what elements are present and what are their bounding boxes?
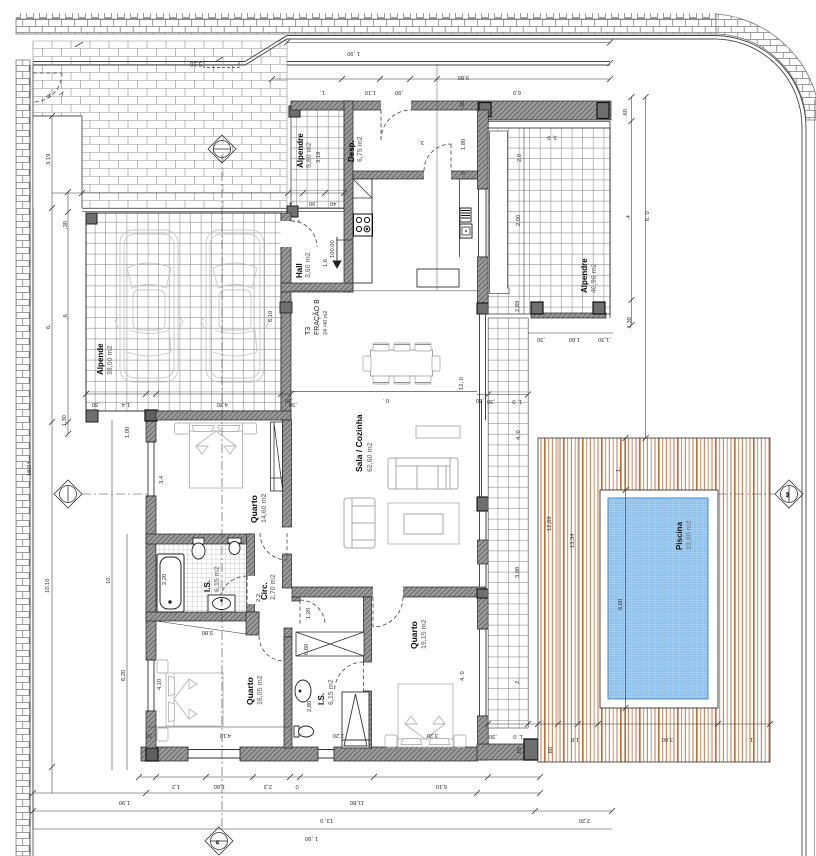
svg-text:1.: 1.	[616, 467, 622, 472]
svg-text:1,6: 1,6	[323, 259, 329, 267]
svg-text:19,84: 19,84	[27, 461, 33, 476]
svg-text:24 /40 m2: 24 /40 m2	[323, 311, 329, 335]
svg-text:6,15 m2: 6,15 m2	[328, 679, 335, 705]
svg-text:12, 0: 12, 0	[459, 377, 465, 390]
svg-text:3,19: 3,19	[316, 152, 322, 163]
svg-text:I.S.: I.S.	[317, 693, 326, 705]
svg-text:1, 0: 1, 0	[513, 733, 523, 739]
svg-text:1,60: 1,60	[214, 783, 225, 789]
svg-text:2,89: 2,89	[515, 301, 521, 312]
svg-text:12,89: 12,89	[547, 516, 553, 531]
svg-text:11,80: 11,80	[350, 799, 364, 805]
svg-text:6,10: 6,10	[268, 311, 274, 322]
svg-text:2.2: 2.2	[256, 594, 262, 602]
svg-text:1,80: 1,80	[461, 139, 467, 150]
svg-text:,90: ,90	[309, 200, 317, 206]
svg-text:,90: ,90	[395, 89, 403, 95]
svg-text:16,05 m2: 16,05 m2	[257, 675, 264, 705]
svg-text:2,00: 2,00	[516, 215, 522, 226]
svg-text:FRAÇÃO B: FRAÇÃO B	[312, 299, 321, 335]
svg-text:1, 0: 1, 0	[512, 398, 522, 404]
svg-text:. 0: . 0	[461, 172, 467, 178]
svg-text:I.S.: I.S.	[203, 580, 212, 592]
svg-text:Alpende: Alpende	[96, 343, 105, 375]
svg-text:6,20: 6,20	[121, 670, 127, 681]
svg-text:0,60: 0,60	[304, 644, 310, 655]
svg-text:T3: T3	[305, 327, 312, 335]
svg-text:5,10: 5,10	[189, 60, 202, 67]
svg-text:4,10: 4,10	[220, 732, 231, 738]
svg-text:1,20: 1,20	[306, 608, 312, 619]
svg-text:6,: 6,	[46, 324, 52, 329]
svg-text:2,70 m2: 2,70 m2	[270, 574, 277, 600]
svg-text:.4: .4	[626, 214, 632, 220]
svg-text:Sala / Cozinha: Sala / Cozinha	[354, 414, 364, 472]
svg-text:19,15 m2: 19,15 m2	[421, 619, 428, 649]
svg-text:13, 0: 13, 0	[320, 817, 333, 823]
svg-text:13,34: 13,34	[570, 533, 576, 548]
svg-text:,30: ,30	[487, 398, 495, 404]
svg-text:.1.30: .1.30	[627, 317, 633, 330]
svg-text:2,20: 2,20	[333, 732, 344, 738]
svg-text:1,: 1,	[320, 89, 325, 95]
svg-text:4. 0: 4. 0	[460, 671, 466, 681]
svg-text:,4: ,4	[288, 200, 294, 206]
svg-text:1.: 1.	[748, 736, 753, 742]
svg-text:23,80 m2: 23,80 m2	[686, 520, 693, 550]
svg-text:. 0: . 0	[296, 783, 302, 789]
svg-text:62,60 m2: 62,60 m2	[367, 442, 374, 472]
svg-text:Alpendre: Alpendre	[580, 258, 589, 293]
svg-text:14,60 m2: 14,60 m2	[261, 493, 268, 523]
svg-text:,30: ,30	[92, 401, 100, 407]
svg-text:3,80: 3,80	[202, 629, 213, 635]
svg-text:2,80: 2,80	[307, 701, 313, 712]
svg-text:,6: ,6	[63, 314, 69, 319]
svg-text:.1,30: .1,30	[62, 415, 68, 428]
svg-text:6,15 m2: 6,15 m2	[214, 566, 221, 592]
svg-text:Piscina: Piscina	[675, 521, 684, 550]
svg-text:5,60 m2: 5,60 m2	[306, 142, 313, 168]
svg-text:1,00: 1,00	[125, 427, 131, 438]
svg-text:,30: ,30	[489, 733, 497, 739]
svg-text:2.: 2.	[515, 679, 521, 684]
svg-text:1,8: 1,8	[571, 736, 579, 742]
svg-text:1 ,90: 1 ,90	[347, 50, 360, 56]
svg-text:Alpendre: Alpendre	[296, 133, 305, 168]
svg-text:2,20: 2,20	[579, 817, 590, 823]
svg-text:10.: 10.	[106, 576, 112, 584]
svg-text:Desp.: Desp.	[347, 140, 356, 162]
svg-text:3,20: 3,20	[427, 732, 438, 738]
svg-text:6,0: 6,0	[513, 89, 521, 95]
svg-text:100.00: 100.00	[330, 240, 336, 258]
svg-text:4,10: 4,10	[157, 679, 163, 690]
svg-text:3,60: 3,60	[662, 736, 673, 742]
svg-text:3.19: 3.19	[46, 154, 52, 165]
svg-text:10,10: 10,10	[45, 578, 51, 593]
svg-text:.60: .60	[623, 109, 629, 117]
svg-text:6,75 m2: 6,75 m2	[357, 136, 364, 162]
svg-text:,30: ,30	[289, 401, 297, 407]
svg-text:40,96 m2: 40,96 m2	[591, 263, 598, 293]
svg-text:1,4.: 1,4.	[120, 401, 130, 407]
svg-text:,30: ,30	[460, 101, 466, 109]
svg-text:0 .: 0 .	[382, 397, 389, 403]
svg-text:Quarto: Quarto	[249, 495, 259, 523]
svg-text:1,90: 1,90	[119, 799, 130, 805]
svg-text:c: c	[216, 840, 219, 846]
svg-text:,30: ,30	[146, 732, 154, 738]
svg-text:,30: ,30	[476, 397, 484, 403]
svg-text:,30: ,30	[537, 336, 545, 342]
svg-text:1 ,90: 1 ,90	[305, 835, 318, 841]
svg-text:6. 0: 6. 0	[645, 211, 651, 221]
svg-text:Quarto: Quarto	[409, 621, 419, 649]
svg-text:2,3: 2,3	[264, 783, 272, 789]
svg-text:1,60: 1,60	[569, 336, 580, 342]
svg-text:Quarto: Quarto	[245, 677, 255, 705]
svg-text:4,20: 4,20	[217, 401, 228, 407]
svg-text:1,2: 1,2	[172, 783, 180, 789]
svg-text:Hall: Hall	[295, 263, 304, 278]
svg-text:,1,30: ,1,30	[598, 336, 611, 342]
svg-text:2,0: 2,0	[517, 154, 523, 162]
svg-text:6,60: 6,60	[618, 599, 624, 610]
svg-text:1,10: 1,10	[365, 89, 376, 95]
svg-text:38,00 m2: 38,00 m2	[107, 345, 114, 375]
svg-text:3, 0: 3, 0	[547, 134, 557, 140]
svg-text:3,4: 3,4	[159, 475, 165, 484]
svg-text:4, 0: 4, 0	[516, 430, 522, 440]
svg-text:6,10: 6,10	[436, 783, 447, 789]
svg-text:3,: 3,	[419, 139, 424, 145]
svg-text:3,88: 3,88	[515, 567, 521, 578]
svg-text:3,60 m2: 3,60 m2	[305, 252, 312, 278]
svg-text:.60: .60	[517, 747, 523, 755]
svg-text:,40: ,40	[330, 200, 338, 206]
svg-text:9,80: 9,80	[458, 74, 469, 80]
svg-text:2,20: 2,20	[162, 574, 168, 585]
svg-text:.60: .60	[548, 747, 554, 755]
svg-text:,30: ,30	[63, 221, 69, 229]
